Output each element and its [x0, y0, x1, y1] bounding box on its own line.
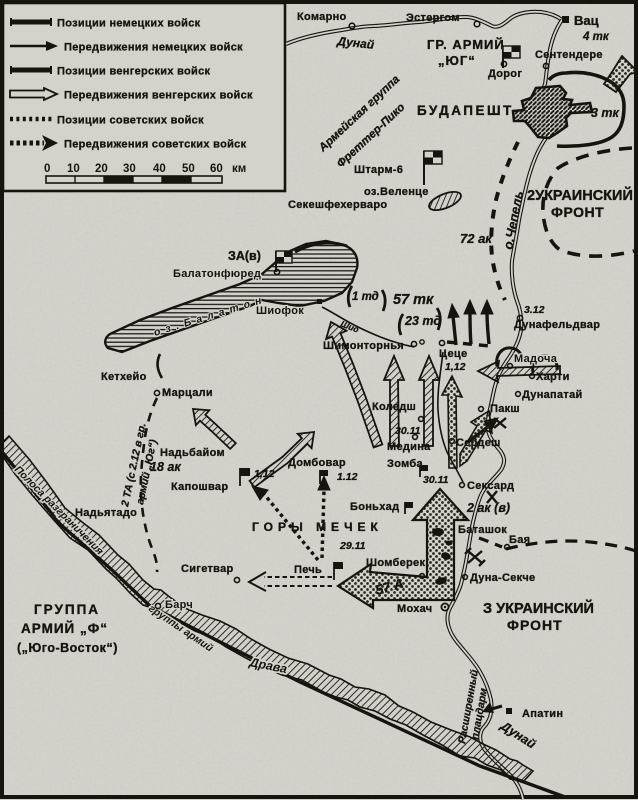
svg-text:Дунафельдвар: Дунафельдвар [514, 319, 600, 331]
svg-text:Комарно: Комарно [297, 11, 347, 23]
svg-text:ЗА(в): ЗА(в) [228, 249, 261, 263]
svg-text:1 тд: 1 тд [352, 291, 379, 303]
svg-text:Марцали: Марцали [162, 387, 213, 399]
svg-text:3 тк: 3 тк [591, 106, 620, 120]
svg-text:Цеце: Цеце [439, 348, 467, 360]
svg-text:3.12: 3.12 [524, 304, 545, 316]
svg-text:Дуна-Секче: Дуна-Секче [470, 572, 535, 584]
svg-text:АРМИЙ „Ф“: АРМИЙ „Ф“ [21, 621, 108, 636]
svg-text:Кетхейо: Кетхейо [101, 371, 147, 383]
svg-text:Сигетвар: Сигетвар [181, 563, 234, 575]
svg-text:Дорог: Дорог [488, 68, 522, 80]
svg-text:Вац: Вац [574, 13, 599, 28]
svg-text:Домбовар: Домбовар [288, 457, 346, 469]
svg-text:ГРУППА: ГРУППА [34, 602, 100, 617]
svg-text:Передвижения советских войск: Передвижения советских войск [64, 139, 247, 151]
svg-text:Пакш: Пакш [490, 403, 520, 415]
svg-text:Сентендере: Сентендере [535, 49, 603, 61]
svg-text:Боньхад: Боньхад [350, 501, 399, 513]
svg-text:23 тд: 23 тд [404, 314, 441, 328]
svg-text:0: 0 [44, 163, 50, 175]
svg-text:Надьятадо: Надьятадо [75, 507, 137, 519]
svg-text:Мадоча: Мадоча [514, 353, 558, 365]
svg-text:ФРОНТ: ФРОНТ [551, 204, 604, 220]
svg-text:(„Юго-Восток“): („Юго-Восток“) [17, 641, 118, 655]
svg-text:57 тк: 57 тк [393, 292, 434, 308]
svg-text:Капошвар: Капошвар [171, 481, 228, 493]
svg-text:Позиции венгерских войск: Позиции венгерских войск [57, 66, 211, 78]
svg-text:29.11: 29.11 [339, 540, 366, 552]
svg-text:Балатонфюред: Балатонфюред [173, 268, 261, 280]
svg-text:40: 40 [153, 163, 166, 175]
svg-text:БУДАПЕШТ: БУДАПЕШТ [417, 103, 514, 118]
svg-text:4 тк: 4 тк [582, 31, 610, 43]
svg-text:Апатин: Апатин [522, 708, 563, 720]
svg-text:оз.Веленце: оз.Веленце [364, 186, 429, 198]
svg-text:км: км [232, 163, 246, 175]
svg-text:72 ак: 72 ак [460, 231, 493, 246]
svg-text:Зомба: Зомба [387, 458, 423, 470]
svg-text:Баташок: Баташок [458, 524, 507, 536]
svg-text:Передвижения немецких войск: Передвижения немецких войск [64, 42, 243, 54]
svg-text:З УКРАИНСКИЙ: З УКРАИНСКИЙ [483, 599, 594, 617]
svg-text:ГР. АРМИЙ: ГР. АРМИЙ [427, 37, 505, 52]
svg-text:Мохач: Мохач [397, 603, 432, 615]
svg-text:Дунапатай: Дунапатай [522, 389, 583, 401]
svg-text:10: 10 [67, 163, 80, 175]
svg-text:Позиции немецких войск: Позиции немецких войск [57, 18, 201, 30]
svg-text:1,12: 1,12 [445, 361, 466, 373]
svg-text:Секешфехерваро: Секешфехерваро [288, 199, 387, 211]
svg-text:Шомберек: Шомберек [366, 557, 425, 569]
svg-text:50: 50 [182, 163, 195, 175]
svg-text:ГОРЫ МЕЧЕК: ГОРЫ МЕЧЕК [252, 520, 383, 534]
svg-text:1.12: 1.12 [337, 471, 358, 483]
svg-text:Позиции советских войск: Позиции советских войск [57, 115, 204, 127]
svg-text:„ЮГ“: „ЮГ“ [438, 53, 476, 68]
svg-text:30.11: 30.11 [423, 474, 449, 486]
svg-text:Печь: Печь [294, 564, 322, 576]
svg-text:60: 60 [210, 163, 223, 175]
svg-text:Сексард: Сексард [467, 480, 514, 492]
svg-text:Эстергом: Эстергом [406, 12, 460, 24]
svg-text:Барч: Барч [165, 599, 193, 611]
svg-text:Штарм-6: Штарм-6 [354, 164, 403, 176]
svg-text:20: 20 [95, 163, 108, 175]
svg-text:Шиофок: Шиофок [256, 305, 304, 317]
svg-text:ФРОНТ: ФРОНТ [507, 617, 563, 633]
svg-text:Надьбайом: Надьбайом [160, 447, 225, 459]
svg-text:2УКРАИНСКИЙ: 2УКРАИНСКИЙ [527, 186, 633, 204]
svg-text:30: 30 [123, 163, 136, 175]
svg-text:Передвижения венгерских войск: Передвижения венгерских войск [64, 90, 253, 102]
